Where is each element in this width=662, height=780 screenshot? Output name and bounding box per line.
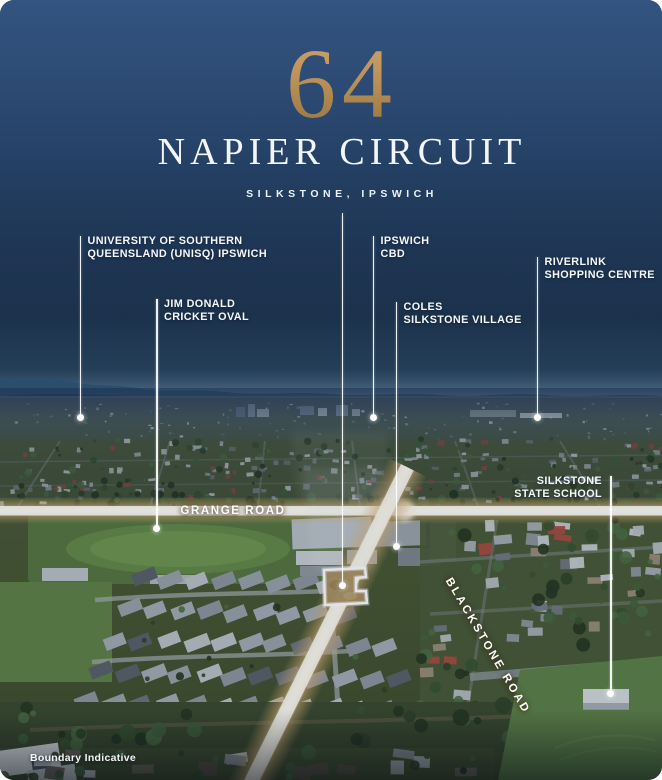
callout-label-line: STATE SCHOOL (514, 488, 602, 501)
callout-dot (393, 543, 400, 550)
callout-line (373, 236, 375, 417)
header-title-block: 64 NAPIER CIRCUIT SILKSTONE, IPSWICH (22, 34, 662, 200)
callout-line (80, 236, 82, 417)
callout-label: UNIVERSITY OF SOUTHERN QUEENSLAND (UNISQ… (88, 235, 268, 261)
property-dot (339, 582, 346, 589)
callout-dot (77, 414, 84, 421)
callout-label-line: UNIVERSITY OF SOUTHERN (88, 235, 268, 248)
callout-line (537, 257, 539, 417)
callout-label-line: COLES (404, 301, 522, 314)
pointer-line (342, 213, 344, 585)
callout-dot (534, 414, 541, 421)
street-number: 64 (22, 34, 662, 134)
road-label-grange-road: GRANGE ROAD (180, 505, 285, 517)
callout-dot (370, 414, 377, 421)
callout-label-line: SILKSTONE VILLAGE (404, 314, 522, 327)
callout-label: JIM DONALD CRICKET OVAL (164, 298, 249, 324)
callout-line (610, 476, 612, 693)
callout-dot (607, 690, 614, 697)
photo-vignette (0, 388, 662, 780)
callout-dot (153, 525, 160, 532)
callout-label-line: JIM DONALD (164, 298, 249, 311)
callout-label-line: SILKSTONE (514, 475, 602, 488)
callout-label-line: CBD (381, 248, 430, 261)
callout-line (396, 302, 398, 546)
callout-label-line: QUEENSLAND (UNISQ) IPSWICH (88, 248, 268, 261)
callout-label-line: SHOPPING CENTRE (545, 269, 655, 282)
boundary-disclaimer: Boundary Indicative (30, 752, 136, 764)
callout-label: RIVERLINK SHOPPING CENTRE (545, 256, 655, 282)
callout-label: IPSWICH CBD (381, 235, 430, 261)
callout-label-line: IPSWICH (381, 235, 430, 248)
callout-label: SILKSTONE STATE SCHOOL (514, 475, 602, 501)
callout-label: COLES SILKSTONE VILLAGE (404, 301, 522, 327)
property-location-poster: GRANGE ROAD BLACKSTONE ROAD 64 NAPIER CI… (0, 0, 662, 780)
suburb-subtitle: SILKSTONE, IPSWICH (22, 188, 662, 200)
street-name: NAPIER CIRCUIT (22, 132, 662, 174)
callout-label-line: CRICKET OVAL (164, 311, 249, 324)
callout-line (156, 299, 158, 528)
callout-label-line: RIVERLINK (545, 256, 655, 269)
